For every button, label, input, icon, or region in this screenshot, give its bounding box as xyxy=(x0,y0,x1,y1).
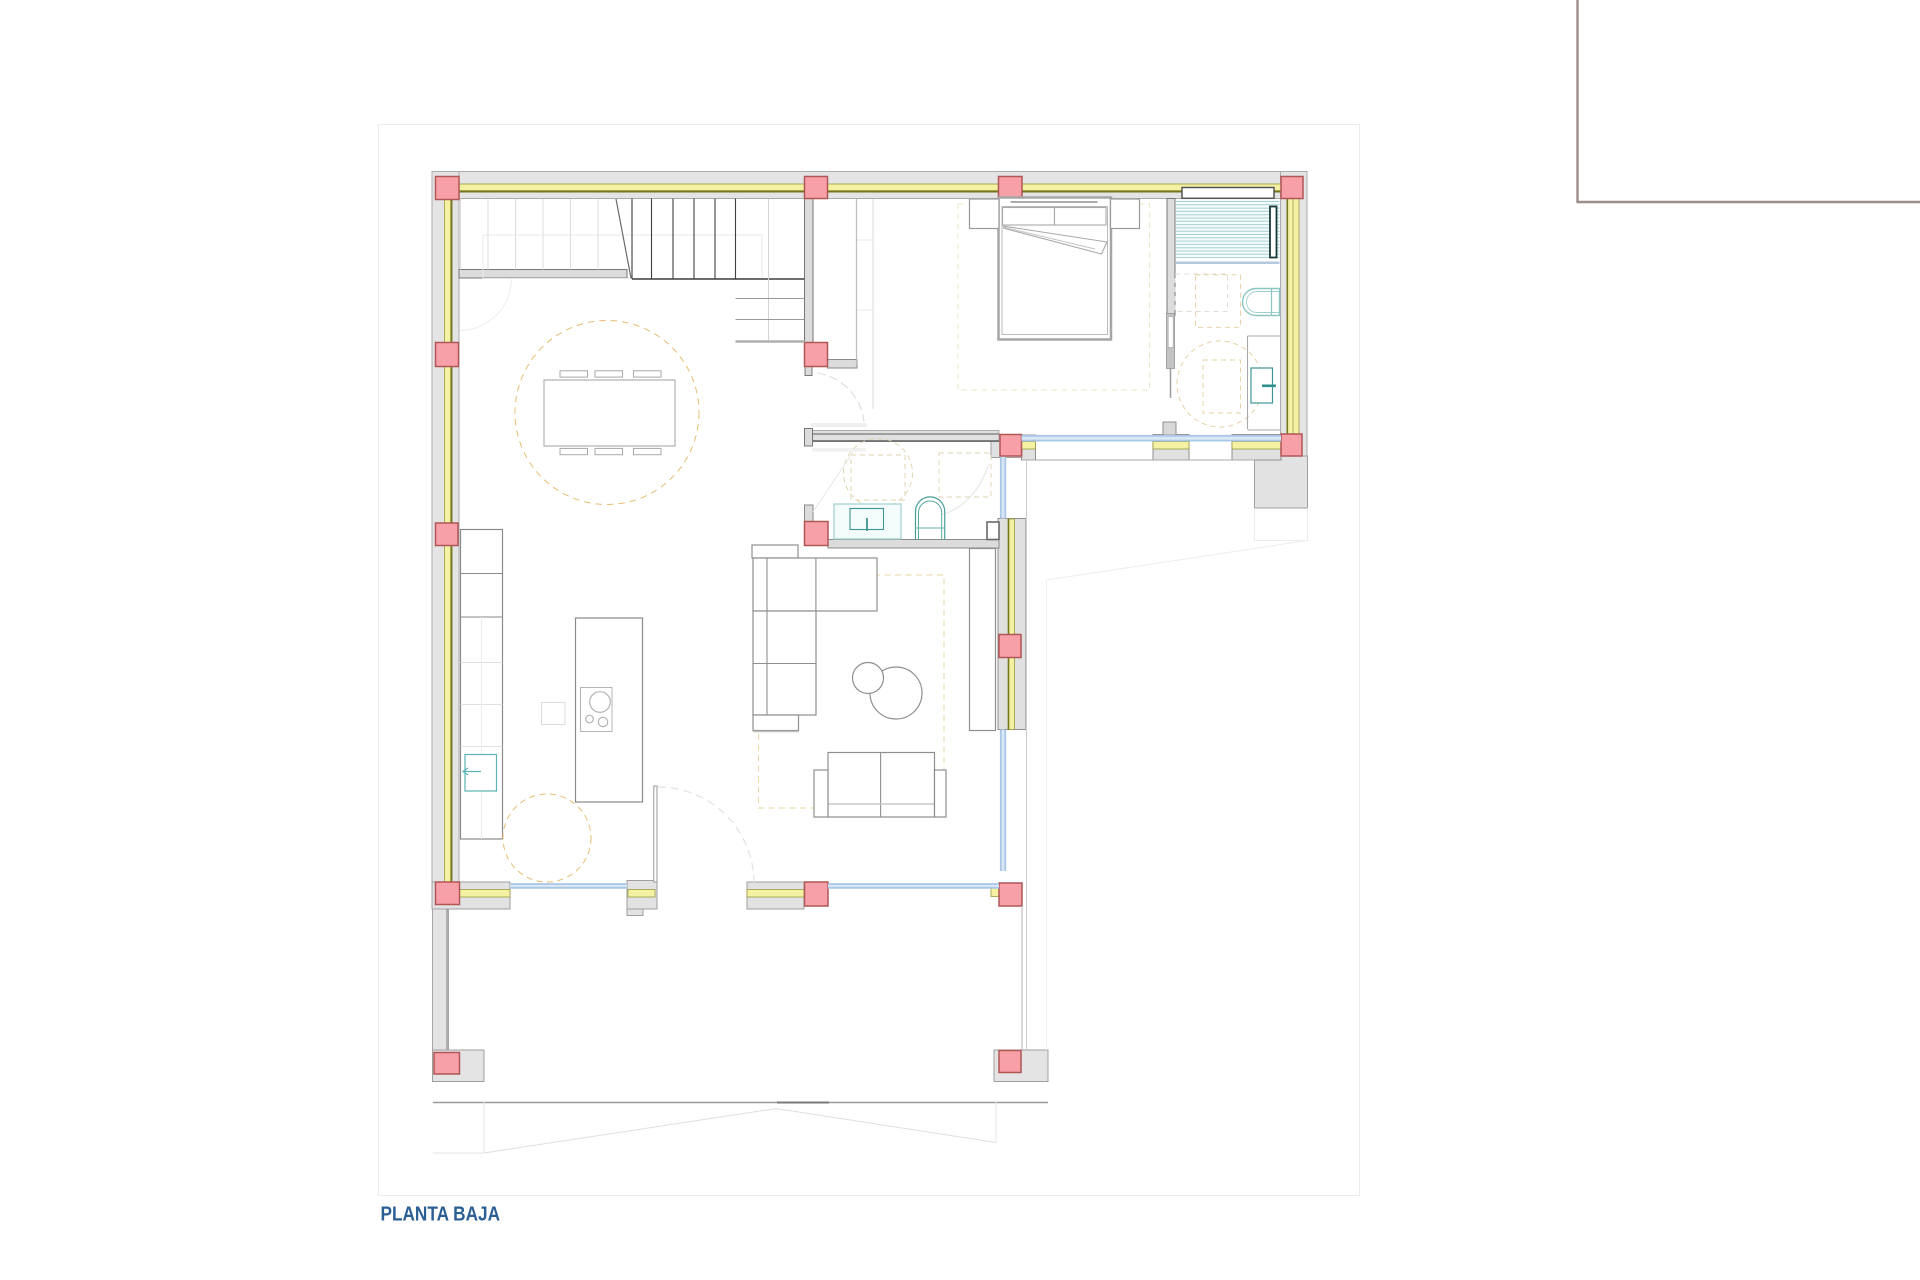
svg-text:PLANTA BAJA: PLANTA BAJA xyxy=(381,1204,501,1226)
